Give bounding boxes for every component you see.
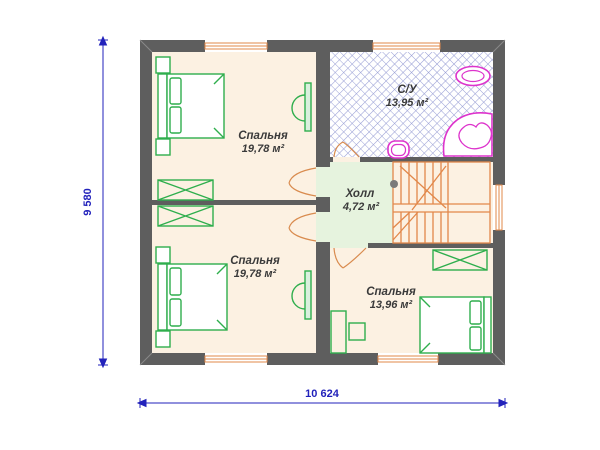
bed-headboard	[158, 74, 167, 138]
window-top-left	[205, 40, 267, 52]
wall-between-left-bedrooms	[152, 200, 316, 205]
dimension-bottom: 10 624	[138, 388, 507, 408]
window-right-stairs	[493, 185, 505, 230]
radiator-body	[305, 271, 311, 319]
sink-basin	[462, 71, 484, 82]
nightstand	[156, 139, 170, 155]
radiator-body	[305, 83, 311, 131]
room-label-bedroom-bottom-left: Спальня	[230, 255, 280, 267]
window-bottom-right	[378, 353, 438, 365]
pillow	[170, 78, 181, 104]
wall-below-bathroom	[360, 157, 493, 162]
window-bottom-left	[205, 353, 267, 365]
pillow	[170, 107, 181, 133]
nightstand	[156, 57, 170, 73]
dimension-arrow-top	[100, 37, 107, 45]
wall-interior-vertical-bottom	[316, 242, 330, 353]
sink	[456, 67, 490, 86]
dimension-width-label: 10 624	[305, 388, 340, 400]
toilet-seat	[392, 145, 406, 156]
room-area-bedroom-bottom-right: 13,96 м²	[370, 299, 413, 311]
wall-exterior-top	[140, 40, 505, 52]
dimension-arrow-bottom	[100, 359, 107, 367]
room-label-bathroom: С/У	[397, 84, 418, 96]
dimension-arrow-left	[138, 400, 146, 407]
pillow	[170, 268, 181, 295]
wall-interior-vertical-top	[316, 52, 330, 167]
bed-bottom-right	[420, 297, 491, 353]
wall-exterior-left	[140, 40, 152, 365]
pillow	[470, 327, 481, 350]
window-top-right	[373, 40, 440, 52]
wall-below-bathroom-left	[330, 157, 333, 162]
bed-headboard	[484, 297, 491, 353]
bed-headboard	[158, 264, 167, 330]
room-area-bedroom-top-left: 19,78 м²	[242, 143, 285, 155]
floor-plan: Спальня 19,78 м² С/У 13,95 м² Холл 4,72 …	[0, 0, 600, 450]
room-label-hall: Холл	[345, 188, 375, 200]
wall-interior-vertical-middle	[316, 197, 330, 212]
toilet	[388, 141, 409, 158]
bathtub-basin	[459, 123, 492, 149]
dimension-arrow-right	[499, 400, 507, 407]
nightstand	[156, 331, 170, 347]
wall-above-bottom-right-bedroom	[368, 243, 493, 248]
nightstand	[156, 247, 170, 263]
room-label-bedroom-bottom-right: Спальня	[366, 286, 416, 298]
dimension-left: 9 580	[82, 37, 108, 367]
pillow	[470, 301, 481, 324]
room-label-bedroom-top-left: Спальня	[238, 130, 288, 142]
room-area-bathroom: 13,95 м²	[386, 97, 429, 109]
stair-newel-post	[390, 180, 398, 188]
pillow	[170, 299, 181, 326]
room-area-bedroom-bottom-left: 19,78 м²	[234, 268, 277, 280]
dimension-height-label: 9 580	[82, 188, 94, 216]
floor-plan-page: Спальня 19,78 м² С/У 13,95 м² Холл 4,72 …	[0, 0, 600, 450]
room-area-hall: 4,72 м²	[342, 201, 380, 213]
wall-exterior-bottom	[140, 353, 505, 365]
